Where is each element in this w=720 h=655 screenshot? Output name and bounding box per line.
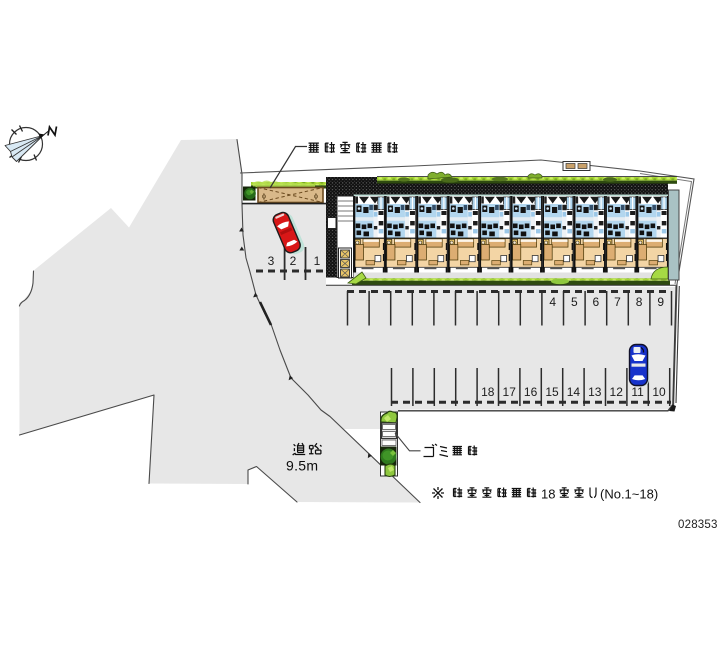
svg-text:7: 7 <box>614 295 621 309</box>
svg-text:ϕ: ϕ <box>314 194 318 201</box>
svg-text:18: 18 <box>541 487 555 502</box>
svg-text:5: 5 <box>571 295 578 309</box>
svg-text:1: 1 <box>314 254 321 268</box>
svg-text:9: 9 <box>657 295 664 309</box>
svg-text:17: 17 <box>503 385 517 399</box>
svg-text:13: 13 <box>588 385 602 399</box>
svg-text:18: 18 <box>481 385 495 399</box>
svg-text:ϕ: ϕ <box>262 194 266 201</box>
svg-text:10: 10 <box>652 385 666 399</box>
svg-text:8: 8 <box>636 295 643 309</box>
svg-text:12: 12 <box>610 385 624 399</box>
svg-text:9.5m: 9.5m <box>286 458 318 474</box>
svg-text:028353: 028353 <box>678 519 718 531</box>
svg-text:16: 16 <box>524 385 538 399</box>
svg-text:2: 2 <box>290 254 297 268</box>
svg-text:3: 3 <box>268 254 275 268</box>
svg-text:4: 4 <box>549 295 556 309</box>
svg-text:(No.1~18): (No.1~18) <box>600 487 658 502</box>
svg-text:11: 11 <box>631 385 644 399</box>
svg-text:14: 14 <box>567 385 581 399</box>
svg-text:15: 15 <box>545 385 559 399</box>
svg-text:6: 6 <box>593 295 600 309</box>
